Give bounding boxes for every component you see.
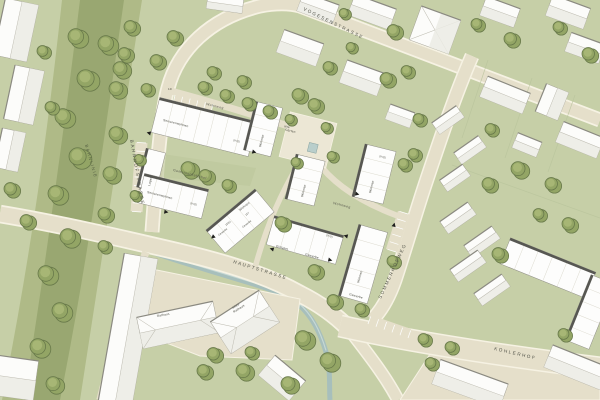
fountain <box>307 142 318 153</box>
site-plan: BAHNLINIE BAHNHOFSTRASSE VOGESENSTRASSE … <box>0 0 600 400</box>
site-plan-map: BAHNLINIE BAHNHOFSTRASSE VOGESENSTRASSE … <box>0 0 600 400</box>
house-number-10: 10 <box>168 87 172 91</box>
building-existing <box>0 355 39 400</box>
